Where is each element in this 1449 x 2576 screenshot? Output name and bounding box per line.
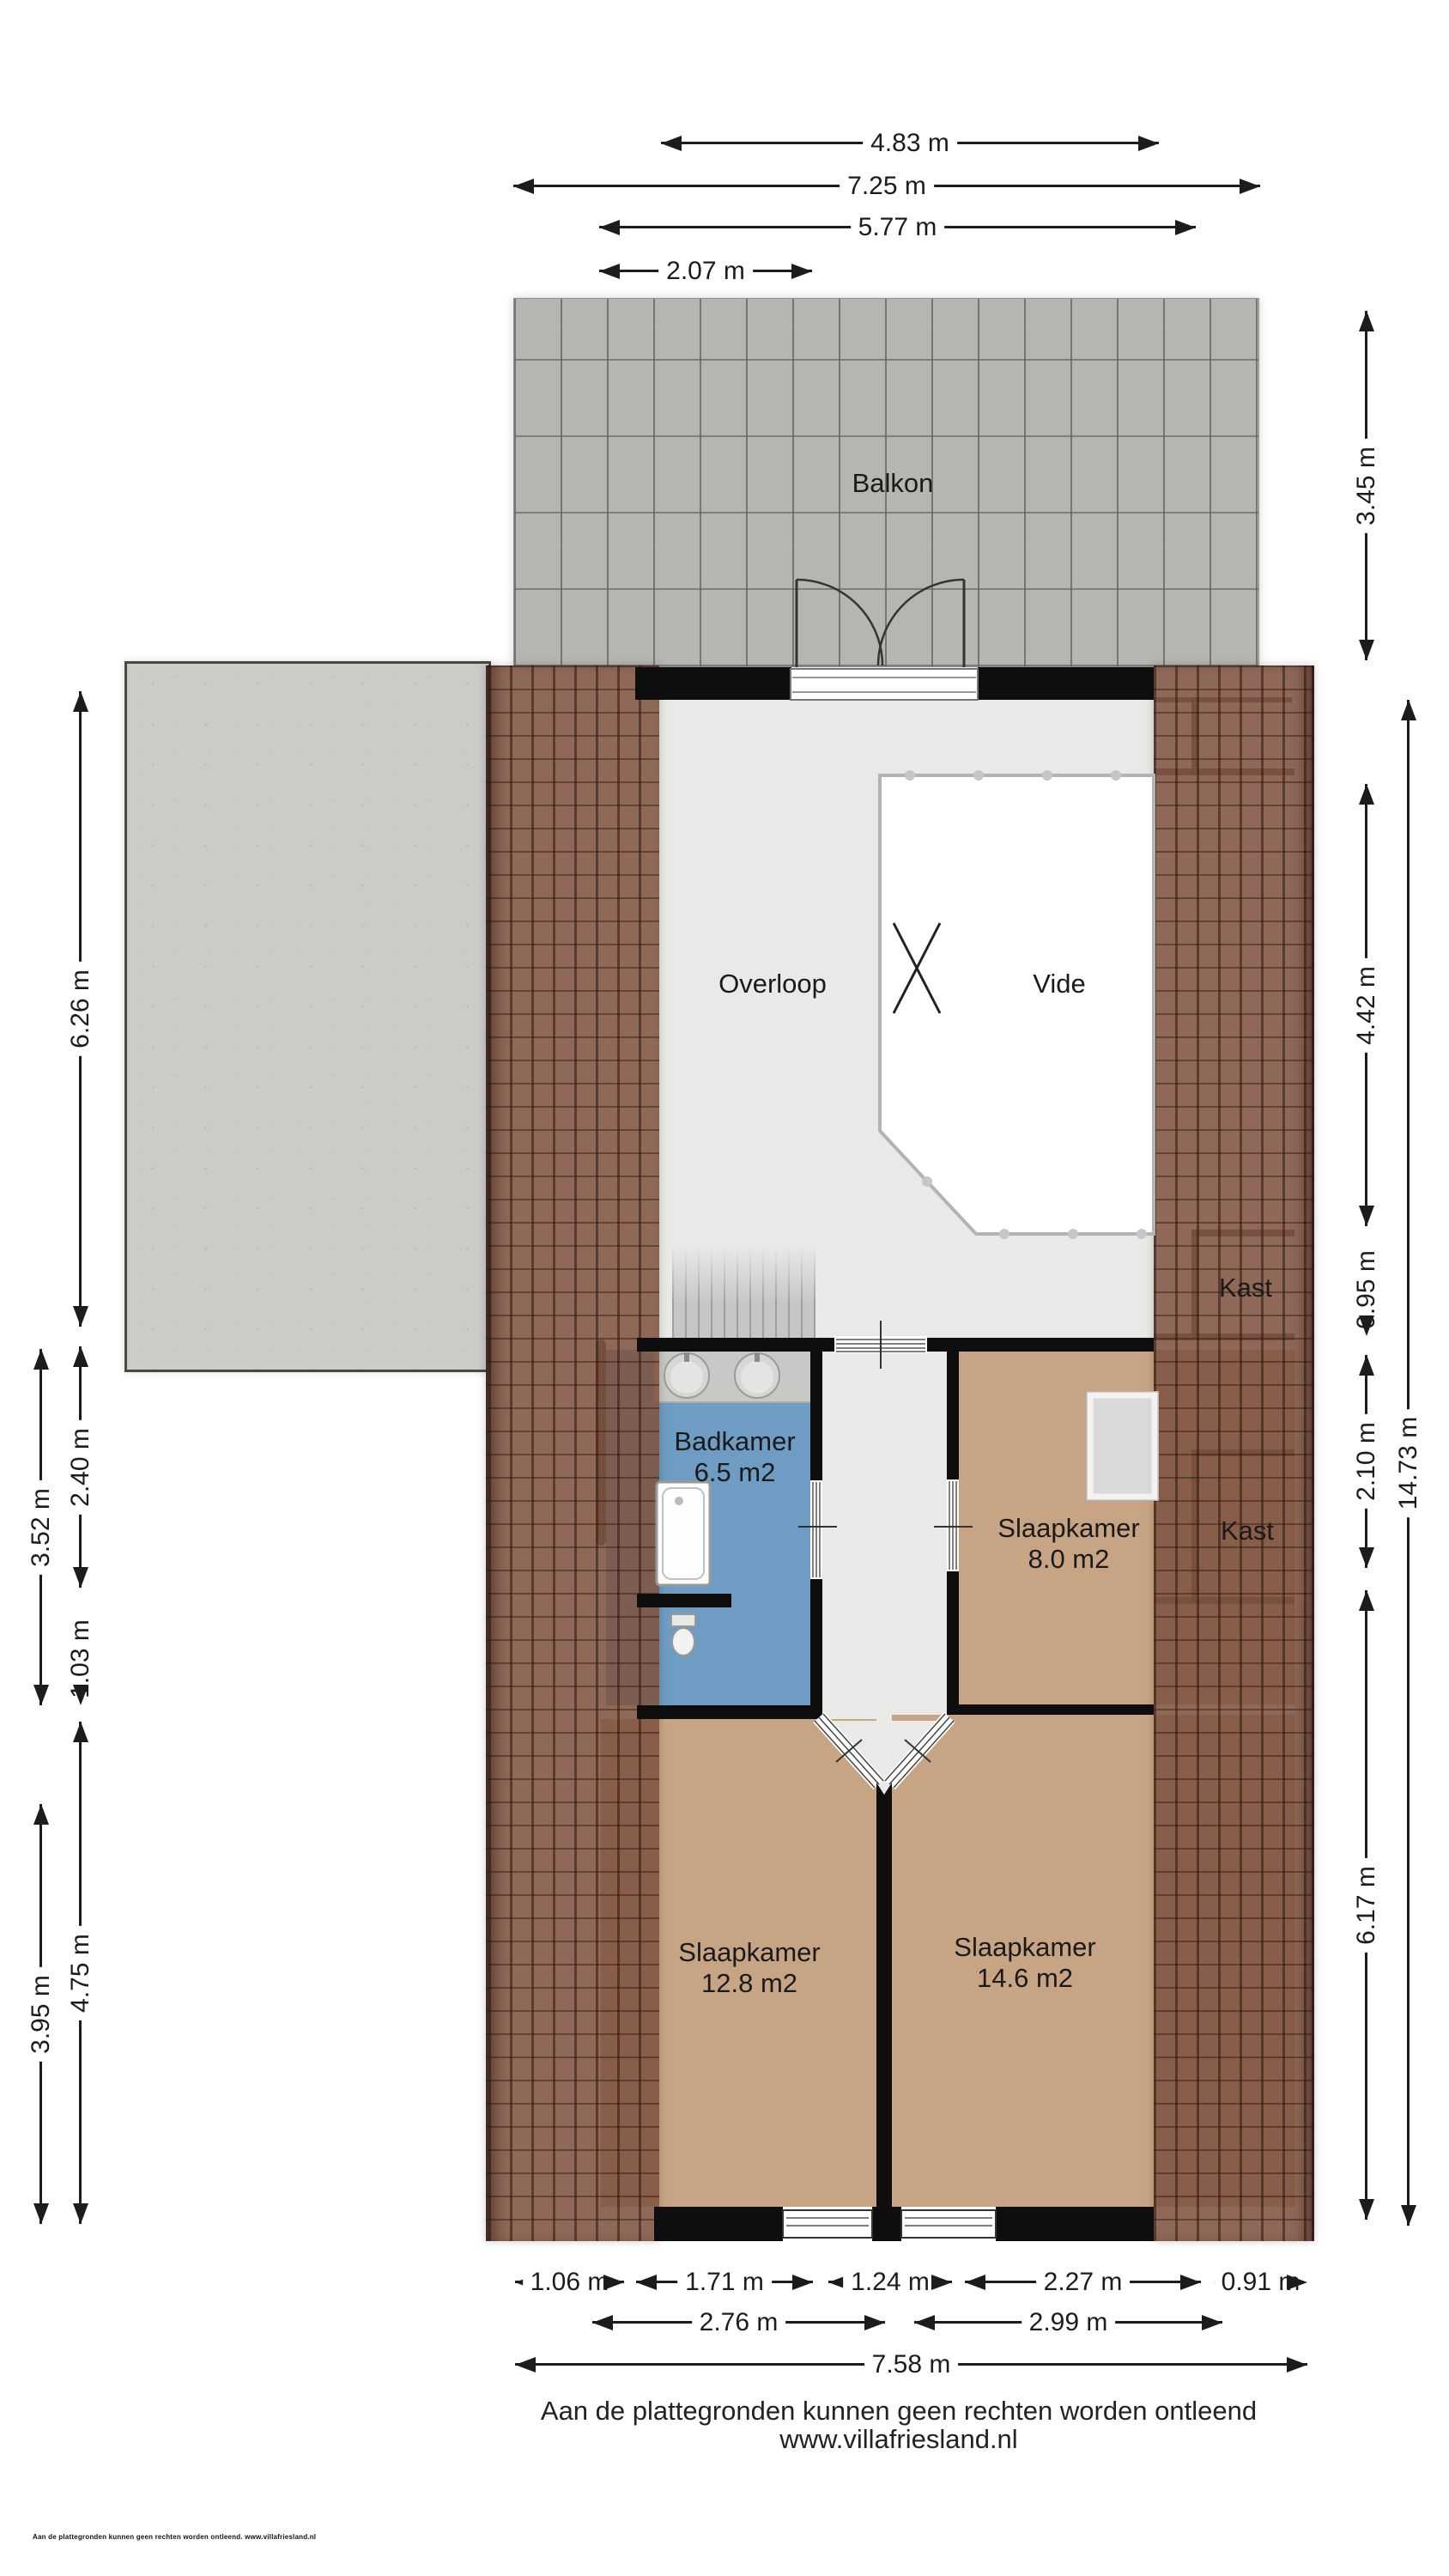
dimension-line: 1.24 m	[828, 2281, 952, 2283]
dimension-line: 2.07 m	[599, 270, 812, 272]
dimension-label: 7.58 m	[864, 2350, 959, 2379]
room-label-kast: Kast	[1219, 1273, 1272, 1303]
window-bottom-right	[901, 2210, 996, 2238]
room-label-kast: Kast	[1221, 1516, 1274, 1546]
dimension-line: 2.99 m	[914, 2321, 1222, 2324]
room-label-badkamer: Badkamer6.5 m2	[674, 1426, 795, 1488]
room-label-slaapkamer: Slaapkamer12.8 m2	[678, 1937, 820, 1999]
bedroom8-door	[934, 1479, 973, 1571]
window-bottom-left	[783, 2210, 872, 2238]
dimension-label: 1.03 m	[66, 1612, 95, 1706]
dimension-label: 4.42 m	[1352, 958, 1381, 1053]
dimension-line: 3.52 m	[39, 1349, 42, 1705]
dimension-line: 7.25 m	[513, 185, 1260, 187]
footer-website: www.villafriesland.nl	[779, 2424, 1017, 2455]
dimension-label: 1.24 m	[843, 2268, 937, 2297]
dimension-line: 0.91 m	[1214, 2281, 1307, 2283]
dimension-label: 1.71 m	[677, 2268, 772, 2297]
dimension-label: 2.07 m	[658, 257, 753, 286]
small-print: Aan de plattegronden kunnen geen rechten…	[33, 2533, 316, 2541]
dimension-label: 2.40 m	[66, 1420, 95, 1515]
room-label-slaapkamer: Slaapkamer14.6 m2	[954, 1932, 1095, 1994]
bathtub-icon	[657, 1482, 710, 1585]
dimension-label: 2.27 m	[1036, 2268, 1131, 2297]
dimension-line: 6.26 m	[79, 691, 82, 1327]
dimension-line: 2.40 m	[79, 1346, 82, 1588]
dimension-label: 3.45 m	[1352, 439, 1381, 533]
toilet-icon	[671, 1614, 695, 1656]
room-label-slaapkamer: Slaapkamer8.0 m2	[997, 1513, 1139, 1575]
dimension-label: 2.99 m	[1022, 2308, 1116, 2337]
dimension-label: 4.83 m	[863, 129, 957, 158]
room-label-vide: Vide	[1033, 969, 1086, 999]
dimension-line: 1.03 m	[79, 1613, 82, 1705]
dimension-label: 7.25 m	[840, 172, 934, 201]
dimension-line: 2.10 m	[1365, 1355, 1367, 1568]
dimension-label: 1.06 m	[523, 2268, 617, 2297]
floorplan-canvas: BalkonOverloopVideKastKastBadkamer6.5 m2…	[0, 0, 1449, 2576]
dimension-label: 4.75 m	[66, 1926, 95, 2020]
room-label-balkon: Balkon	[852, 468, 934, 499]
corridor-threshold	[834, 1321, 927, 1369]
bedroom8-roof-window	[1087, 1392, 1158, 1500]
dimension-line: 4.42 m	[1365, 784, 1367, 1226]
dimension-label: 0.95 m	[1352, 1242, 1381, 1337]
dimension-line: 4.83 m	[661, 142, 1159, 144]
dimension-line: 1.06 m	[515, 2281, 624, 2283]
dimension-label: 6.17 m	[1352, 1858, 1381, 1953]
dimension-line: 3.45 m	[1365, 311, 1367, 660]
dimension-line: 2.76 m	[592, 2321, 885, 2324]
dimension-label: 2.10 m	[1352, 1414, 1381, 1509]
dimension-line: 4.75 m	[79, 1722, 82, 2224]
dimension-line: 2.27 m	[965, 2281, 1201, 2283]
dimension-line: 14.73 m	[1407, 700, 1410, 2226]
bathroom-door	[798, 1480, 837, 1579]
dimension-line: 5.77 m	[599, 226, 1196, 228]
footer-disclaimer: Aan de plattegronden kunnen geen rechten…	[541, 2396, 1257, 2427]
room-area: 12.8 m2	[678, 1968, 820, 1999]
room-label-overloop: Overloop	[718, 969, 827, 999]
dimension-label: 3.95 m	[27, 1967, 56, 2062]
dimension-line: 1.71 m	[636, 2281, 813, 2283]
dimension-line: 7.58 m	[515, 2363, 1307, 2366]
dimension-label: 0.91 m	[1214, 2268, 1308, 2297]
dimension-label: 5.77 m	[851, 213, 945, 242]
room-area: 14.6 m2	[954, 1963, 1095, 1994]
vide-void-outline	[880, 770, 1154, 1239]
room-area: 6.5 m2	[674, 1457, 795, 1488]
room-area: 8.0 m2	[997, 1544, 1139, 1575]
dimension-label: 14.73 m	[1394, 1408, 1423, 1516]
dimension-line: 0.95 m	[1365, 1243, 1367, 1336]
dimension-label: 3.52 m	[27, 1480, 56, 1575]
dimension-line: 6.17 m	[1365, 1590, 1367, 2220]
dimension-label: 6.26 m	[66, 962, 95, 1056]
balcony-door	[791, 580, 978, 700]
dimension-line: 3.95 m	[39, 1804, 42, 2224]
sink-icon	[664, 1353, 709, 1398]
sink-icon	[735, 1353, 779, 1398]
dimension-label: 2.76 m	[692, 2308, 786, 2337]
